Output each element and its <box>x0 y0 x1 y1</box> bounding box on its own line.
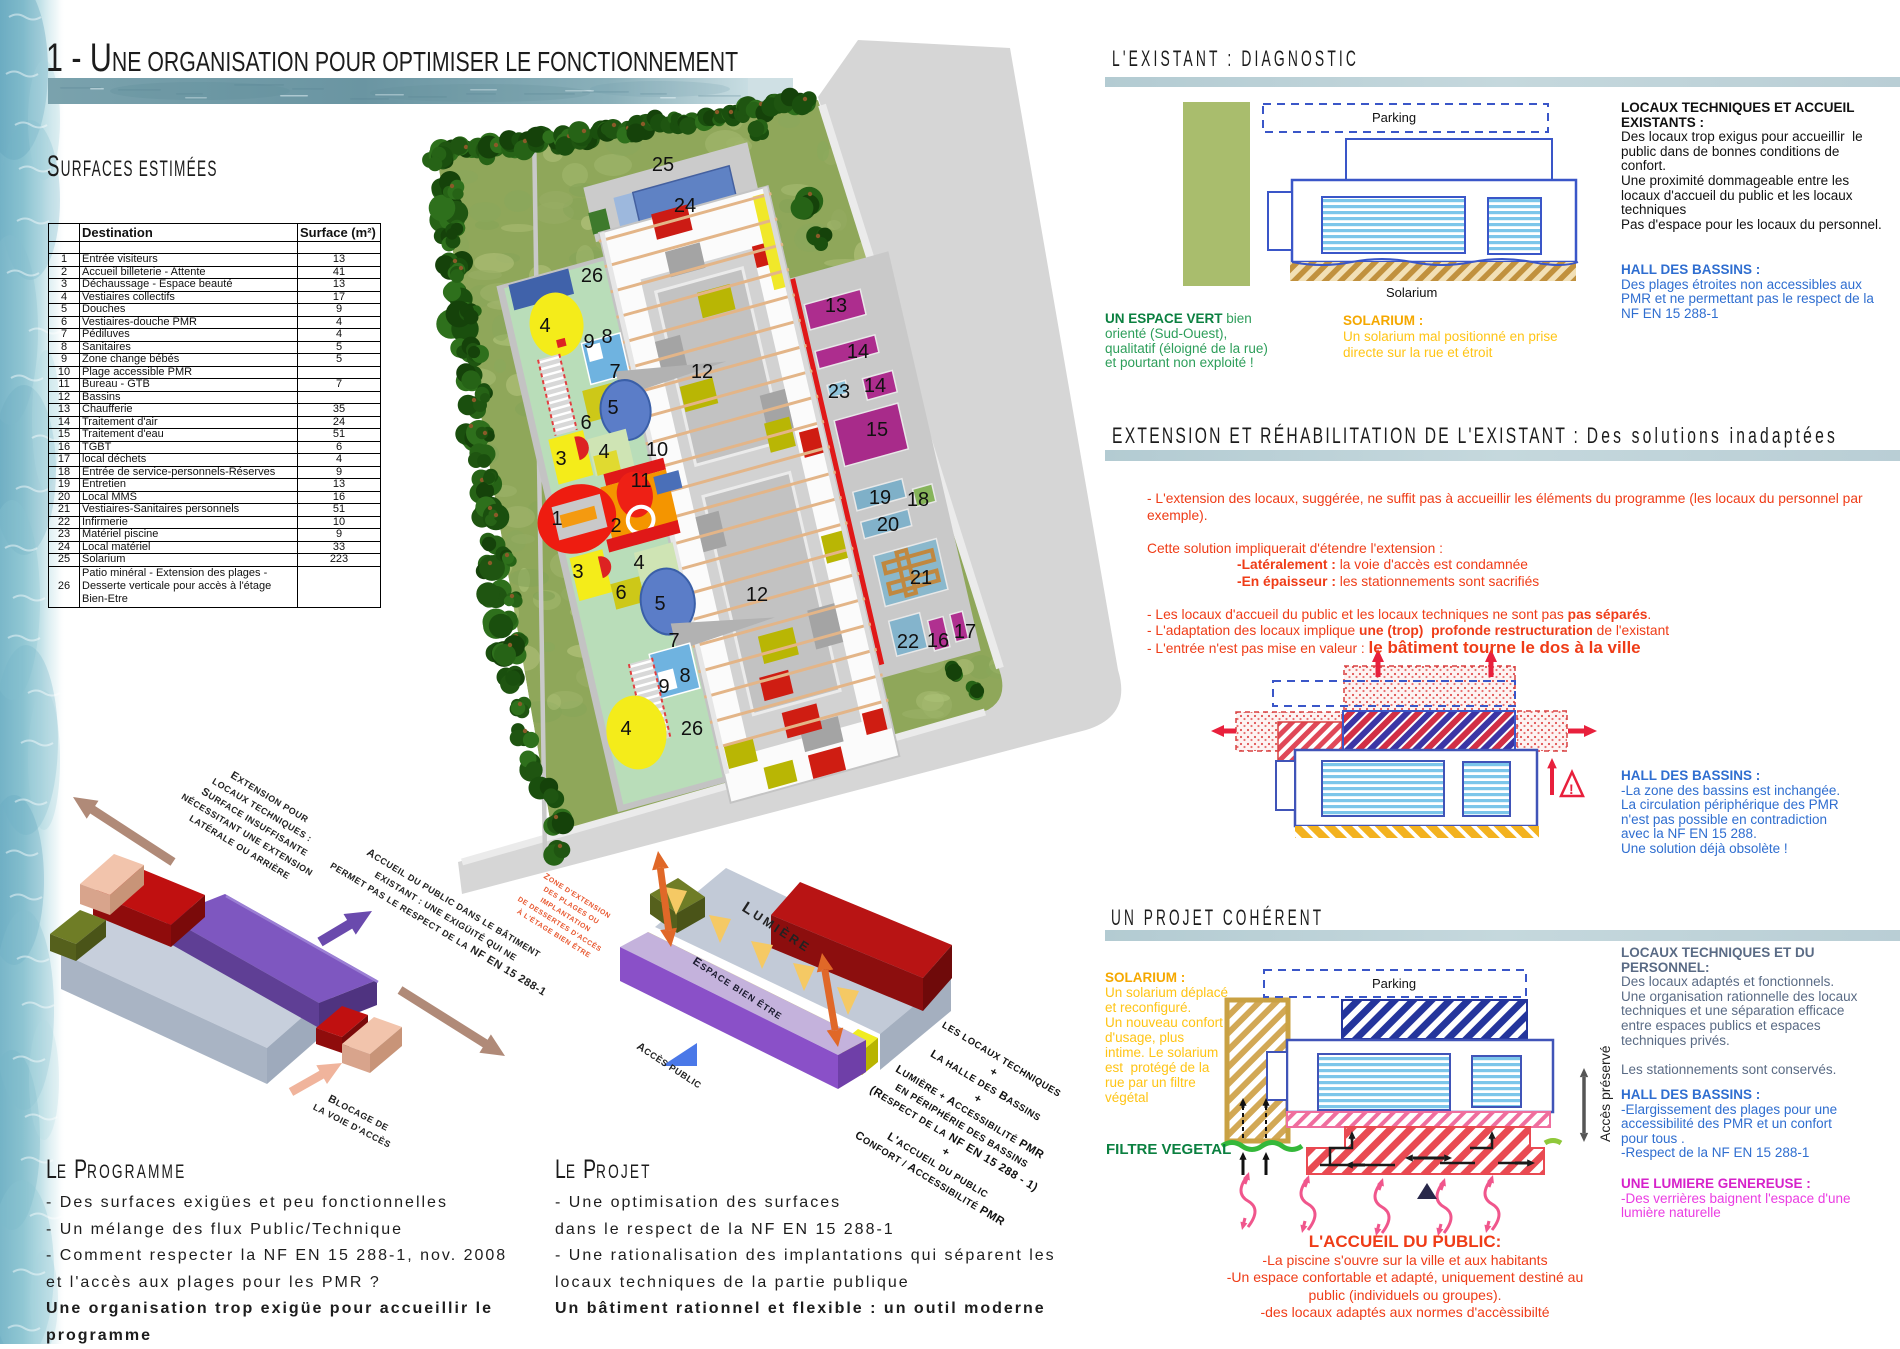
svg-text:4: 4 <box>620 718 631 740</box>
svg-text:3: 3 <box>555 448 566 470</box>
svg-text:3: 3 <box>572 561 583 583</box>
svg-text:Parking: Parking <box>1372 976 1416 991</box>
svg-text:11: 11 <box>631 470 652 492</box>
svg-text:8: 8 <box>679 665 690 687</box>
svg-text:12: 12 <box>691 361 713 383</box>
svg-text:5: 5 <box>654 593 665 615</box>
svg-text:9: 9 <box>583 331 594 353</box>
svg-text:17: 17 <box>954 621 976 643</box>
svg-text:7: 7 <box>668 630 679 652</box>
svg-text:Solarium: Solarium <box>1386 285 1437 300</box>
svg-text:+: + <box>939 1145 951 1159</box>
svg-text:8: 8 <box>601 326 612 348</box>
svg-text:Parking: Parking <box>1372 110 1416 125</box>
svg-text:2: 2 <box>610 515 621 537</box>
svg-text:16: 16 <box>927 630 949 652</box>
svg-text:6: 6 <box>615 582 626 604</box>
svg-text:4: 4 <box>539 315 550 337</box>
svg-text:Accès préservé: Accès préservé <box>1597 1045 1613 1142</box>
svg-text:21: 21 <box>910 567 932 589</box>
svg-text:15: 15 <box>866 419 888 441</box>
svg-text:18: 18 <box>907 489 929 511</box>
svg-text:14: 14 <box>847 341 869 363</box>
svg-text:6: 6 <box>580 412 591 434</box>
svg-text:1: 1 <box>551 508 562 530</box>
svg-text:26: 26 <box>581 265 603 287</box>
svg-text:4: 4 <box>598 441 609 463</box>
svg-text:12: 12 <box>746 584 768 606</box>
svg-text:!: ! <box>1569 781 1574 797</box>
svg-text:4: 4 <box>633 552 644 574</box>
svg-text:22: 22 <box>897 631 919 653</box>
svg-text:26: 26 <box>681 718 703 740</box>
svg-text:23: 23 <box>828 381 850 403</box>
svg-text:25: 25 <box>652 154 674 176</box>
svg-text:20: 20 <box>877 514 899 536</box>
svg-text:7: 7 <box>609 361 620 383</box>
svg-text:5: 5 <box>607 397 618 419</box>
svg-text:10: 10 <box>646 439 668 461</box>
svg-text:19: 19 <box>869 487 891 509</box>
svg-text:13: 13 <box>825 295 847 317</box>
svg-text:14: 14 <box>864 375 886 397</box>
svg-text:+: + <box>987 1066 999 1080</box>
svg-text:9: 9 <box>658 676 669 698</box>
svg-text:24: 24 <box>674 195 696 217</box>
svg-text:+: + <box>971 1092 983 1106</box>
